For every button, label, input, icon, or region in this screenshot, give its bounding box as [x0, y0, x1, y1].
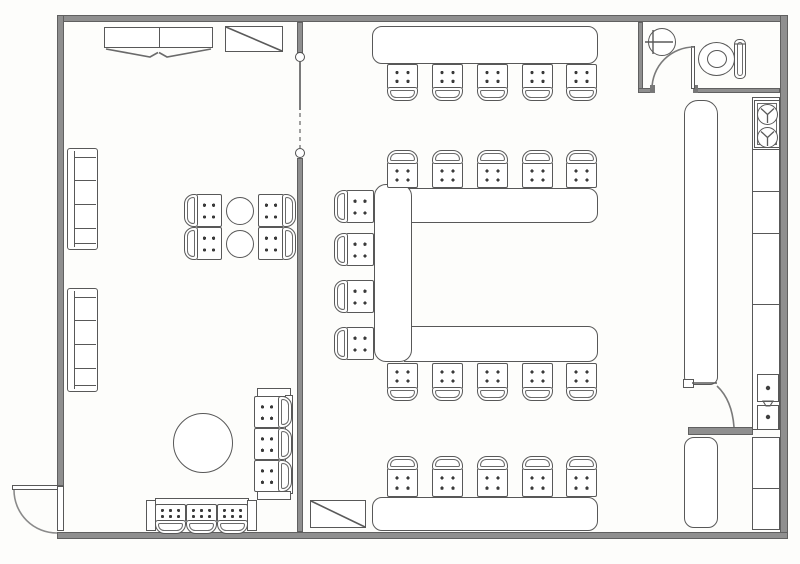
- kitchen-lower-counter: [752, 437, 780, 530]
- restroom-wall-bottom-b: [694, 88, 780, 93]
- bar-stool: [522, 150, 553, 188]
- counter-division: [753, 233, 779, 234]
- divider-post-top: [295, 52, 305, 62]
- chair-seat: [522, 468, 553, 497]
- burner-icon: [757, 127, 778, 148]
- bench-cushion-line: [74, 157, 96, 158]
- u-bar-top-arm: [404, 188, 598, 223]
- chair-seat: [346, 280, 374, 313]
- restroom-doorstop-left: [650, 85, 655, 93]
- chair-seat: [432, 162, 463, 188]
- chair-seat: [346, 233, 374, 266]
- chair-back: [387, 456, 418, 470]
- wall-bench: [67, 288, 98, 392]
- lounge-chair: [184, 194, 222, 227]
- south-counter: [372, 497, 598, 531]
- bar-stool: [477, 363, 508, 401]
- banquette-seat: [254, 428, 292, 460]
- bar-stool: [334, 327, 374, 360]
- chair-seat: [258, 194, 284, 227]
- stairs-symbol-top: [225, 26, 283, 52]
- chair-back: [387, 87, 418, 101]
- bench-cushion-line: [74, 180, 96, 181]
- wall-top: [57, 15, 788, 22]
- chair-back: [278, 428, 292, 460]
- settee-arm-right: [247, 500, 257, 531]
- toilet-tank-icon: [734, 39, 746, 79]
- bench-cushion-line: [74, 243, 96, 244]
- chair-seat: [566, 64, 597, 89]
- chair-seat: [254, 428, 280, 460]
- chair-seat: [346, 327, 374, 360]
- cabinet-divider: [159, 28, 160, 47]
- chair-back: [387, 150, 418, 164]
- wash-basin-icon: [648, 28, 676, 56]
- chair-back: [282, 194, 296, 227]
- chair-back: [278, 460, 292, 492]
- bar-stool: [522, 363, 553, 401]
- chair-back: [522, 456, 553, 470]
- entrance-door-swing-icon: [14, 490, 57, 533]
- wall-right: [780, 15, 788, 539]
- bar-stool: [477, 64, 508, 101]
- chair-seat: [566, 162, 597, 188]
- chair-seat: [387, 64, 418, 89]
- chair-back: [432, 456, 463, 470]
- bench-cushion-line: [74, 320, 96, 321]
- kitchen-pass-block: [683, 379, 694, 388]
- chair-back: [186, 520, 217, 534]
- chair-back: [477, 150, 508, 164]
- kitchen-stub-wall: [688, 427, 753, 435]
- counter-division: [753, 191, 779, 192]
- bench-cushion-line: [74, 228, 96, 229]
- chair-seat: [477, 468, 508, 497]
- chair-seat: [522, 363, 553, 389]
- settee-seat: [186, 504, 217, 534]
- chair-back: [432, 87, 463, 101]
- chair-back: [334, 190, 348, 223]
- chair-seat: [387, 363, 418, 389]
- chair-back: [477, 387, 508, 401]
- chair-seat: [432, 64, 463, 89]
- wardrobe-rod-mark-right: [159, 49, 211, 57]
- chair-back: [477, 87, 508, 101]
- service-counter-upper: [684, 100, 718, 385]
- lounge-chair: [258, 194, 296, 227]
- banquette-cap-bottom: [257, 491, 291, 500]
- round-table-large: [173, 413, 233, 473]
- chair-back: [184, 227, 198, 260]
- chair-back: [566, 456, 597, 470]
- wardrobe-cabinet: [104, 27, 213, 48]
- service-counter-lower: [684, 437, 718, 528]
- chair-seat: [254, 460, 280, 492]
- banquette-seat: [254, 460, 292, 492]
- chair-seat: [387, 468, 418, 497]
- bar-stool: [522, 456, 553, 497]
- chair-back: [566, 387, 597, 401]
- bar-stool: [334, 280, 374, 313]
- chair-back: [334, 233, 348, 266]
- chair-seat: [432, 468, 463, 497]
- chair-back: [387, 387, 418, 401]
- bar-stool: [387, 363, 418, 401]
- divider-wall-upper: [297, 22, 303, 53]
- bar-stool: [566, 150, 597, 188]
- chair-back: [522, 150, 553, 164]
- bar-stool: [387, 150, 418, 188]
- wall-bench: [67, 148, 98, 250]
- u-bar-bottom-arm: [404, 326, 598, 362]
- bar-stool: [432, 456, 463, 497]
- chair-back: [334, 327, 348, 360]
- chair-back: [566, 150, 597, 164]
- lounge-chair: [184, 227, 222, 260]
- chair-back: [217, 520, 248, 534]
- bench-cushion-line: [74, 344, 96, 345]
- bar-stool: [432, 363, 463, 401]
- toilet-bowl-inner: [707, 50, 727, 68]
- wardrobe-rod-mark-left: [106, 49, 158, 57]
- prep-sink-upper: [757, 374, 779, 402]
- chair-seat: [196, 194, 222, 227]
- chair-seat: [566, 468, 597, 497]
- bench-cushion-line: [74, 204, 96, 205]
- chair-seat: [387, 162, 418, 188]
- prep-sink-lower: [757, 405, 779, 430]
- bar-stool: [387, 64, 418, 101]
- bar-stool: [566, 363, 597, 401]
- entrance-door-jamb: [57, 486, 64, 531]
- chair-back: [282, 227, 296, 260]
- restroom-door-leaf: [691, 46, 695, 89]
- chair-back: [432, 150, 463, 164]
- bench-cushion-line: [74, 297, 96, 298]
- stairs-symbol-bottom: [310, 500, 366, 528]
- divider-wall-lower: [297, 158, 303, 532]
- bar-stool: [334, 233, 374, 266]
- u-bar-spine: [374, 184, 412, 362]
- chair-back: [184, 194, 198, 227]
- bench-cushion-line: [74, 385, 96, 386]
- settee-seat: [155, 504, 186, 534]
- banquette-seat: [254, 396, 292, 428]
- chair-seat: [254, 396, 280, 428]
- round-table-small: [226, 230, 254, 258]
- chair-seat: [258, 227, 284, 260]
- chair-back: [155, 520, 186, 534]
- floor-plan: [0, 0, 800, 564]
- chair-seat: [432, 363, 463, 389]
- chair-seat: [522, 64, 553, 89]
- bench-backrest: [74, 151, 75, 247]
- chair-seat: [196, 227, 222, 260]
- round-table-small: [226, 197, 254, 225]
- chair-seat: [522, 162, 553, 188]
- bar-stool: [477, 456, 508, 497]
- chair-seat: [477, 64, 508, 89]
- bar-stool: [432, 150, 463, 188]
- chair-back: [278, 396, 292, 428]
- bench-backrest: [74, 291, 75, 389]
- chair-back: [522, 87, 553, 101]
- divider-post-bottom: [295, 148, 305, 158]
- kitchen-pass-door-swing-icon: [717, 386, 734, 427]
- bar-stool: [334, 190, 374, 223]
- entrance-door-leaf: [12, 485, 58, 490]
- counter-division: [753, 149, 779, 150]
- chair-seat: [477, 162, 508, 188]
- chair-back: [432, 387, 463, 401]
- bar-stool: [387, 456, 418, 497]
- chair-seat: [477, 363, 508, 389]
- bar-stool: [477, 150, 508, 188]
- chair-back: [334, 280, 348, 313]
- settee-seat: [217, 504, 248, 534]
- chair-seat: [346, 190, 374, 223]
- bar-stool: [566, 64, 597, 101]
- bench-cushion-line: [74, 368, 96, 369]
- chair-back: [522, 387, 553, 401]
- wall-left: [57, 15, 64, 486]
- bar-stool: [522, 64, 553, 101]
- chair-back: [477, 456, 508, 470]
- bar-stool: [432, 64, 463, 101]
- burner-icon: [757, 104, 778, 125]
- counter-division: [753, 304, 779, 305]
- chair-seat: [566, 363, 597, 389]
- north-counter: [372, 26, 598, 64]
- chair-back: [566, 87, 597, 101]
- restroom-wall-left: [638, 22, 643, 92]
- bar-stool: [566, 456, 597, 497]
- counter-division: [753, 488, 779, 489]
- lounge-chair: [258, 227, 296, 260]
